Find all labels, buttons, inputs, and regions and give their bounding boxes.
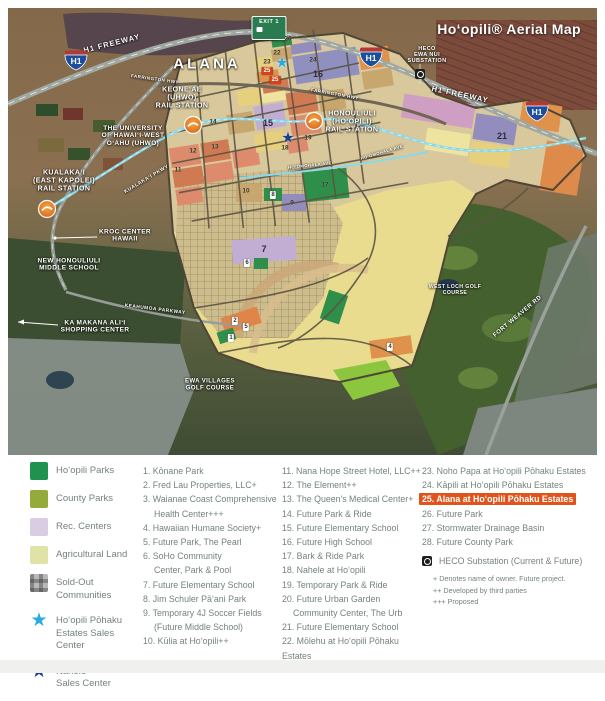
legend-item-5: 5. Future Park, The Pearl <box>143 535 283 549</box>
legend-item-line: 2. Fred Lau Properties, LLC+ <box>143 478 283 492</box>
label-line: GOLF COURSE <box>185 385 235 392</box>
map-marker-17: 17 <box>321 182 328 189</box>
label-line: SHOPPING CENTER <box>61 327 130 334</box>
map-marker-1: 1 <box>228 334 234 342</box>
map-marker-12: 12 <box>189 148 196 155</box>
legend-item-12: 12. The Element++ <box>282 478 424 492</box>
map-marker-2: 2 <box>232 317 238 325</box>
legend-item-line: 25. Alana at Hoʻopili Pōhaku Estates <box>422 492 598 506</box>
legend-item-2: 2. Fred Lau Properties, LLC+ <box>143 478 283 492</box>
legend-star-icon: ★ <box>30 612 48 630</box>
legend-footnote: + Denotes name of owner. Future project. <box>433 573 598 585</box>
label-line: KEONEʻAE <box>156 86 209 94</box>
legend-swatch <box>30 462 48 480</box>
legend-item-27: 27. Stormwater Drainage Basin <box>422 521 598 535</box>
legend-swatch <box>30 574 48 592</box>
legend-item-line: 10. Kūlia at Hoʻopili++ <box>143 634 283 648</box>
legend-item-28: 28. Future County Park <box>422 535 598 549</box>
legend-item-3: 3. Waianae Coast ComprehensiveHealth Cen… <box>143 492 283 520</box>
legend-key-line: Sales Center <box>56 678 111 691</box>
legend-item-line: 22. Mōlehu at Hoʻopili Pōhaku Estates <box>282 634 424 662</box>
legend-footnote: +++ Proposed <box>433 596 598 608</box>
map-marker-10: 10 <box>242 188 249 195</box>
map-marker-22: 22 <box>273 50 280 57</box>
label-kroc-center: KROC CENTERHAWAII <box>99 229 151 244</box>
legend-item-15: 15. Future Elementary School <box>282 521 424 535</box>
label-line: (EAST KAPOLEI) <box>33 177 95 185</box>
legend-key-label: Agricultural Land <box>56 546 127 562</box>
legend-item-18: 18. Nahele at Hoʻopili <box>282 563 424 577</box>
label-alana: ALANA <box>173 57 241 74</box>
legend-item-10: 10. Kūlia at Hoʻopili++ <box>143 634 283 648</box>
legend-key-label: County Parks <box>56 490 113 506</box>
aerial-map: Hoʻopili® Aerial Map H1 FREEWAYALANAFARR… <box>8 8 597 455</box>
map-marker-7: 7 <box>261 244 266 254</box>
label-kualakai-rail-station: KUALAKAʻI(EAST KAPOLEI)RAIL STATION <box>33 169 95 192</box>
legend-item-19: 19. Temporary Park & Ride <box>282 578 424 592</box>
legend-item-14: 14. Future Park & Ride <box>282 507 424 521</box>
label-line: RAIL STATION <box>156 102 209 110</box>
legend-item-line: 27. Stormwater Drainage Basin <box>422 521 598 535</box>
legend-item-line: Health Center+++ <box>154 507 283 521</box>
map-marker-16: 16 <box>313 69 323 79</box>
heco-substation-label: HECO Substation (Current & Future) <box>439 554 582 568</box>
label-line: COURSE <box>429 291 482 297</box>
legend-item-9: 9. Temporary 4J Soccer Fields(Future Mid… <box>143 606 283 634</box>
legend-item-4: 4. Hawaiian Humane Society+ <box>143 521 283 535</box>
map-marker-19: 19 <box>304 135 311 142</box>
legend-item-17: 17. Bark & Ride Park <box>282 549 424 563</box>
legend-item-line: 14. Future Park & Ride <box>282 507 424 521</box>
label-line: ALANA <box>173 57 241 74</box>
sales-center-star-icon: ★ <box>275 56 288 71</box>
map-marker-14: 14 <box>209 119 216 126</box>
rail-station-icon <box>38 200 57 219</box>
legend-item-21: 21. Future Elementary School <box>282 620 424 634</box>
legend-item-line: 11. Nana Hope Street Hotel, LLC++ <box>282 464 424 478</box>
legend-key-line: Center <box>56 640 122 653</box>
legend-item-line: 26. Future Park <box>422 507 598 521</box>
legend-item-line: 19. Temporary Park & Ride <box>282 578 424 592</box>
legend-item-line: 17. Bark & Ride Park <box>282 549 424 563</box>
legend-column-3: 23. Noho Papa at Hoʻopili Pōhaku Estates… <box>422 464 598 608</box>
legend-swatch <box>30 490 48 508</box>
legend-item-line: 24. Kāpili at Hoʻopili Pōhaku Estates <box>422 478 598 492</box>
h1-shield-icon: H1 <box>64 49 88 71</box>
label-line: KUALAKAʻI <box>33 169 95 177</box>
legend-item-25: 25. Alana at Hoʻopili Pōhaku Estates <box>422 492 598 506</box>
legend-swatch <box>30 518 48 536</box>
legend-item-20: 20. Future Urban GardenCommunity Center,… <box>282 592 424 620</box>
h1-shield-icon: H1 <box>359 46 383 68</box>
map-marker-6: 6 <box>244 259 250 267</box>
map-marker-15: 15 <box>263 118 273 128</box>
legend-item-22: 22. Mōlehu at Hoʻopili Pōhaku Estates <box>282 634 424 662</box>
legend-item-line: 18. Nahele at Hoʻopili <box>282 563 424 577</box>
legend-item-23: 23. Noho Papa at Hoʻopili Pōhaku Estates <box>422 464 598 478</box>
legend: Hoʻopili ParksCounty ParksRec. CentersAg… <box>0 455 605 660</box>
exit-sign-glyph <box>257 27 263 32</box>
legend-key-ho-opili-p-haku: ★Hoʻopili PōhakuEstates SalesCenter <box>30 612 144 653</box>
legend-item-7: 7. Future Elementary School <box>143 578 283 592</box>
label-line: RAIL STATION <box>326 126 379 134</box>
map-marker-25: 25 <box>262 67 273 75</box>
legend-item-24: 24. Kāpili at Hoʻopili Pōhaku Estates <box>422 478 598 492</box>
map-marker-8: 8 <box>270 191 276 199</box>
heco-substation-icon <box>422 556 432 566</box>
label-line: HONOULIULI <box>326 110 379 118</box>
legend-item-line: 3. Waianae Coast Comprehensive <box>143 492 283 506</box>
map-marker-18: 18 <box>281 145 288 152</box>
map-marker-25: 25 <box>270 76 281 84</box>
legend-key-label: Hoʻopili PōhakuEstates SalesCenter <box>56 612 122 653</box>
legend-footnote: ++ Developed by third parties <box>433 585 598 597</box>
legend-column-2: 11. Nana Hope Street Hotel, LLC++12. The… <box>282 464 424 663</box>
legend-item-line: 7. Future Elementary School <box>143 578 283 592</box>
label-line: EWA VILLAGES <box>185 378 235 385</box>
map-title: Hoʻopili® Aerial Map <box>437 21 581 37</box>
legend-item-1: 1. Kōnane Park <box>143 464 283 478</box>
legend-item-line: 16. Future High School <box>282 535 424 549</box>
rail-station-icon <box>184 116 203 135</box>
legend-item-line: 1. Kōnane Park <box>143 464 283 478</box>
legend-key-sold-out: Sold-OutCommunities <box>30 574 144 602</box>
legend-item-13: 13. The Queen's Medical Center+ <box>282 492 424 506</box>
aerial-artwork <box>8 8 597 455</box>
label-line: OF HAWAIʻI-WEST <box>102 132 165 139</box>
legend-key-line: County Parks <box>56 493 113 506</box>
legend-item-line: 8. Jim Schuler Pāʻani Park <box>143 592 283 606</box>
map-marker-23: 23 <box>263 59 270 66</box>
legend-key-ho-opili-parks: Hoʻopili Parks <box>30 462 144 480</box>
legend-key-line: Agricultural Land <box>56 549 127 562</box>
legend-item-line: 12. The Element++ <box>282 478 424 492</box>
legend-item-line: 21. Future Elementary School <box>282 620 424 634</box>
svg-text:H1: H1 <box>366 53 377 63</box>
label-line: RAIL STATION <box>33 185 95 193</box>
legend-item-26: 26. Future Park <box>422 507 598 521</box>
legend-item-line: 20. Future Urban Garden <box>282 592 424 606</box>
legend-key-line: Estates Sales <box>56 628 122 641</box>
legend-key-rec-centers: Rec. Centers <box>30 518 144 536</box>
label-line: (HOʻOPILI) <box>326 118 379 126</box>
footer-strip <box>0 660 605 673</box>
legend-item-line: (Future Middle School) <box>154 620 283 634</box>
label-west-loch-golf: WEST LOCH GOLFCOURSE <box>429 285 482 297</box>
exit-sign-label: EXIT 1 <box>253 19 286 25</box>
map-marker-21: 21 <box>497 131 507 141</box>
rail-station-icon <box>305 112 324 131</box>
label-line: MIDDLE SCHOOL <box>37 265 100 272</box>
legend-item-16: 16. Future High School <box>282 535 424 549</box>
label-line: OʻAHU (UHWO) <box>102 140 165 147</box>
legend-item-line: 5. Future Park, The Pearl <box>143 535 283 549</box>
legend-item-6: 6. SoHo CommunityCenter, Park & Pool <box>143 549 283 577</box>
legend-item-line: 6. SoHo Community <box>143 549 283 563</box>
map-marker-9: 9 <box>290 200 294 207</box>
label-new-honouliuli-middle-school: NEW HONOULIULIMIDDLE SCHOOL <box>37 258 100 273</box>
legend-key-line: Sold-Out <box>56 577 111 590</box>
legend-item-line: 4. Hawaiian Humane Society+ <box>143 521 283 535</box>
legend-item-line: Community Center, The Urb <box>293 606 424 620</box>
legend-item-line: 28. Future County Park <box>422 535 598 549</box>
exit-sign: EXIT 1 <box>252 16 287 40</box>
label-line: HAWAII <box>99 236 151 243</box>
svg-text:H1: H1 <box>71 56 82 66</box>
legend-key-agricultural-land: Agricultural Land <box>30 546 144 564</box>
legend-key-county-parks: County Parks <box>30 490 144 508</box>
heco-substation-legend-row: HECO Substation (Current & Future) <box>422 554 598 568</box>
legend-key-line: Hoʻopili Parks <box>56 465 114 478</box>
map-marker-13: 13 <box>211 144 218 151</box>
heco-substation-icon <box>415 69 425 79</box>
svg-text:H1: H1 <box>532 107 543 117</box>
legend-key-label: Sold-OutCommunities <box>56 574 111 602</box>
legend-item-line: 9. Temporary 4J Soccer Fields <box>143 606 283 620</box>
label-keoneae-rail-station: KEONEʻAE(UHWO)RAIL STATION <box>156 86 209 109</box>
h1-shield-icon: H1 <box>525 100 549 122</box>
legend-key-line: Rec. Centers <box>56 521 111 534</box>
label-line: SUBSTATION <box>408 58 447 64</box>
legend-key-label: Rec. Centers <box>56 518 111 534</box>
label-ewa-villages-golf: EWA VILLAGESGOLF COURSE <box>185 378 235 391</box>
legend-item-11: 11. Nana Hope Street Hotel, LLC++ <box>282 464 424 478</box>
legend-key-line: Hoʻopili Pōhaku <box>56 615 122 628</box>
legend-swatch <box>30 546 48 564</box>
label-honouliuli-rail-station: HONOULIULI(HOʻOPILI)RAIL STATION <box>326 110 379 133</box>
legend-key-label: Hoʻopili Parks <box>56 462 114 478</box>
legend-column-1: 1. Kōnane Park2. Fred Lau Properties, LL… <box>143 464 283 649</box>
label-line: (UHWO) <box>156 94 209 102</box>
map-marker-11: 11 <box>175 167 182 174</box>
legend-item-line: 23. Noho Papa at Hoʻopili Pōhaku Estates <box>422 464 598 478</box>
highlighted-legend-entry: 25. Alana at Hoʻopili Pōhaku Estates <box>419 493 576 505</box>
label-ka-makana-alii: KA MAKANA ALIʻISHOPPING CENTER <box>61 320 130 335</box>
page: Hoʻopili® Aerial Map H1 FREEWAYALANAFARR… <box>0 0 605 673</box>
legend-key-line: Communities <box>56 590 111 603</box>
legend-item-8: 8. Jim Schuler Pāʻani Park <box>143 592 283 606</box>
label-uhwo: THE UNIVERSITYOF HAWAIʻI-WESTOʻAHU (UHWO… <box>102 125 165 147</box>
legend-item-line: Center, Park & Pool <box>154 563 283 577</box>
legend-footnotes: + Denotes name of owner. Future project.… <box>433 573 598 608</box>
map-marker-26: 26 <box>284 36 291 43</box>
map-marker-5: 5 <box>243 323 249 331</box>
legend-item-line: 13. The Queen's Medical Center+ <box>282 492 424 506</box>
map-marker-24: 24 <box>309 57 316 64</box>
map-marker-4: 4 <box>387 343 393 351</box>
label-heco-ewa-nui-substation: HECOEWA NUISUBSTATION <box>408 46 447 64</box>
sales-center-star-icon: ★ <box>281 131 294 146</box>
legend-item-line: 15. Future Elementary School <box>282 521 424 535</box>
